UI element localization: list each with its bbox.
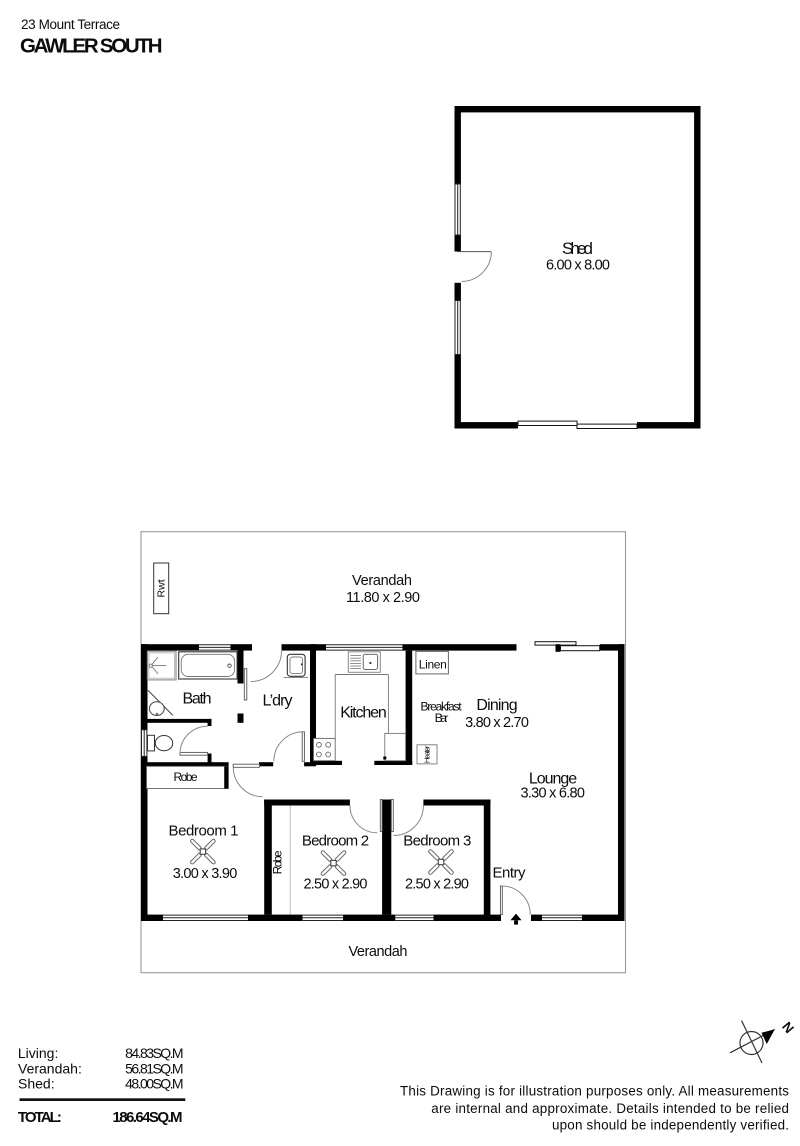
svg-text:2.50 x 2.90: 2.50 x 2.90 [405, 877, 469, 893]
svg-text:Bedroom 3: Bedroom 3 [403, 833, 471, 850]
svg-text:Living:: Living: [18, 1045, 58, 1061]
svg-text:84.83SQ.M: 84.83SQ.M [125, 1045, 184, 1061]
svg-text:Entry: Entry [493, 865, 527, 882]
svg-text:186.64SQ.M: 186.64SQ.M [113, 1109, 183, 1126]
svg-text:23 Mount Terrace: 23 Mount Terrace [21, 17, 120, 32]
svg-text:11.80 x 2.90: 11.80 x 2.90 [346, 590, 420, 606]
svg-text:Shed:: Shed: [18, 1076, 55, 1092]
svg-text:Robe: Robe [174, 770, 198, 784]
svg-text:Dining: Dining [476, 697, 517, 714]
svg-text:are internal and approximate.: are internal and approximate. Details in… [431, 1101, 789, 1116]
svg-text:Verandah:: Verandah: [18, 1060, 82, 1076]
svg-text:GAWLER SOUTH: GAWLER SOUTH [20, 35, 163, 58]
svg-text:3.80 x 2.70: 3.80 x 2.70 [465, 715, 529, 731]
svg-text:Heater: Heater [422, 745, 431, 763]
svg-text:Bedroom 1: Bedroom 1 [169, 823, 239, 840]
svg-text:L’dry: L’dry [263, 693, 293, 710]
svg-text:3.00 x 3.90: 3.00 x 3.90 [173, 866, 238, 882]
svg-text:Linen: Linen [419, 658, 447, 672]
svg-text:2.50 x 2.90: 2.50 x 2.90 [304, 877, 368, 893]
svg-text:Kitchen: Kitchen [340, 705, 387, 722]
svg-text:Verandah: Verandah [352, 573, 412, 589]
svg-text:48.00SQ.M: 48.00SQ.M [125, 1076, 184, 1092]
svg-text:6.00 x 8.00: 6.00 x 8.00 [546, 258, 610, 274]
svg-text:Verandah: Verandah [349, 944, 408, 960]
svg-text:upon should be independently v: upon should be independently verified. [552, 1118, 789, 1133]
svg-text:This Drawing is for illustrati: This Drawing is for illustration purpose… [400, 1084, 789, 1099]
svg-text:Bedroom 2: Bedroom 2 [302, 833, 369, 850]
svg-text:Bath: Bath [183, 691, 212, 708]
svg-text:3.30 x 6.80: 3.30 x 6.80 [521, 786, 585, 802]
svg-text:Bar: Bar [435, 711, 449, 725]
svg-text:Robe: Robe [271, 850, 285, 874]
svg-text:56.81SQ.M: 56.81SQ.M [125, 1060, 184, 1076]
svg-text:Rwt: Rwt [155, 579, 167, 597]
svg-text:TOTAL:: TOTAL: [18, 1109, 62, 1126]
svg-text:Shed: Shed [562, 239, 593, 258]
